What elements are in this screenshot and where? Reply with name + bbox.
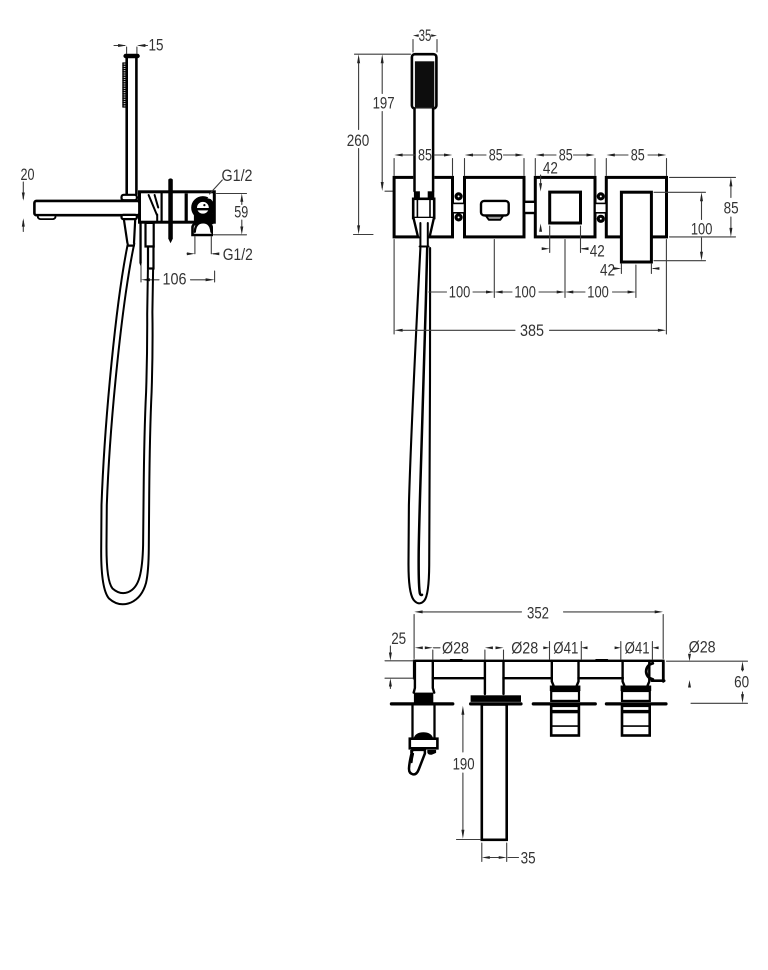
svg-text:85: 85 [559, 147, 573, 165]
svg-text:197: 197 [373, 95, 395, 113]
svg-text:20: 20 [21, 166, 35, 184]
svg-text:85: 85 [418, 147, 432, 165]
svg-text:385: 385 [520, 322, 544, 340]
svg-text:190: 190 [453, 756, 475, 774]
svg-text:60: 60 [734, 674, 749, 692]
svg-text:35: 35 [521, 850, 536, 868]
svg-text:42: 42 [590, 243, 605, 261]
svg-text:59: 59 [234, 204, 248, 222]
svg-text:Ø28: Ø28 [511, 640, 538, 658]
svg-text:85: 85 [489, 147, 503, 165]
svg-text:G1/2: G1/2 [222, 167, 253, 185]
svg-text:42: 42 [543, 160, 558, 178]
svg-text:85: 85 [724, 200, 739, 218]
svg-text:42: 42 [600, 262, 615, 280]
svg-text:G1/2: G1/2 [223, 246, 253, 264]
svg-text:Ø41: Ø41 [553, 640, 578, 658]
svg-text:Ø28: Ø28 [689, 639, 716, 657]
svg-text:100: 100 [449, 284, 471, 302]
svg-text:85: 85 [631, 147, 645, 165]
svg-text:Ø28: Ø28 [442, 640, 469, 658]
svg-text:100: 100 [587, 284, 609, 302]
svg-text:15: 15 [149, 37, 164, 55]
svg-text:260: 260 [347, 132, 370, 150]
svg-text:100: 100 [691, 221, 713, 239]
svg-text:352: 352 [527, 605, 549, 623]
svg-text:106: 106 [163, 271, 187, 289]
svg-text:Ø41: Ø41 [625, 640, 650, 658]
svg-text:25: 25 [391, 630, 406, 648]
svg-text:100: 100 [514, 284, 536, 302]
svg-text:35: 35 [419, 27, 432, 45]
